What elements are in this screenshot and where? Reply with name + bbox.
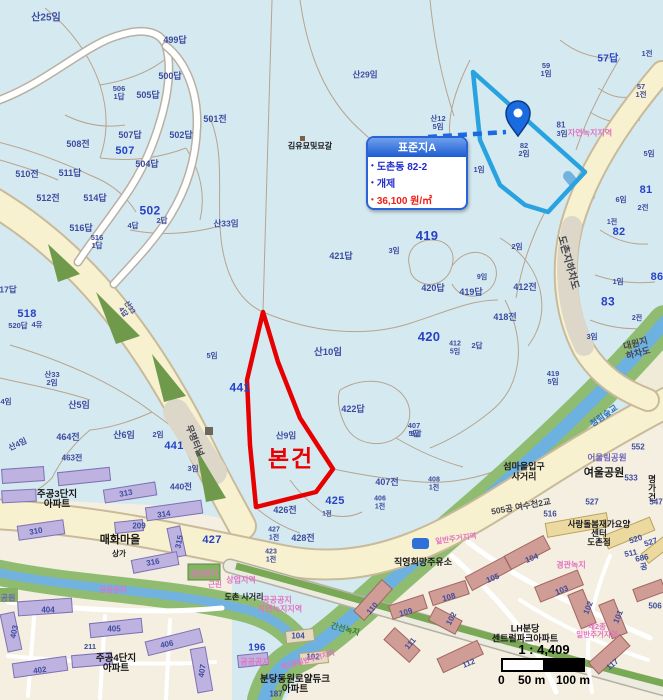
gas-station-icon — [412, 538, 429, 549]
infobox-row: •개제 — [368, 174, 466, 191]
bullet-icon: • — [371, 179, 374, 187]
infobox-row: •36,100 원/㎡ — [368, 191, 466, 208]
infobox-row-text: 개제 — [377, 175, 395, 190]
infobox-rows: •도촌동 82-2•개제•36,100 원/㎡ — [368, 157, 466, 208]
bullet-icon: • — [371, 162, 374, 170]
scale-tick-end: 100 m — [556, 673, 590, 687]
cadastral-map — [0, 0, 663, 700]
infobox-row-text: 36,100 원/㎡ — [377, 192, 432, 207]
bullet-icon: • — [371, 196, 374, 204]
scale-segment-white — [503, 660, 543, 670]
scale-bar-graphic — [501, 658, 585, 672]
scale-ticks: 0 50 m 100 m — [492, 673, 614, 687]
scale-ratio: 1 : 4,409 — [498, 642, 590, 657]
map-canvas[interactable]: 산25임499답500답505답506 1답501전508전507답507504… — [0, 0, 663, 700]
standard-site-infobox: 표준지A •도촌동 82-2•개제•36,100 원/㎡ — [366, 136, 468, 210]
infobox-row: •도촌동 82-2 — [368, 157, 466, 174]
infobox-title: 표준지A — [368, 138, 466, 157]
scale-segment-black — [543, 660, 583, 670]
scale-bar: 1 : 4,409 0 50 m 100 m — [492, 642, 614, 687]
scale-tick-mid: 50 m — [518, 673, 545, 687]
infobox-row-text: 도촌동 82-2 — [377, 158, 427, 173]
monument-icon — [300, 136, 305, 141]
tunnel-icon — [205, 427, 213, 435]
scale-tick-start: 0 — [498, 673, 505, 687]
